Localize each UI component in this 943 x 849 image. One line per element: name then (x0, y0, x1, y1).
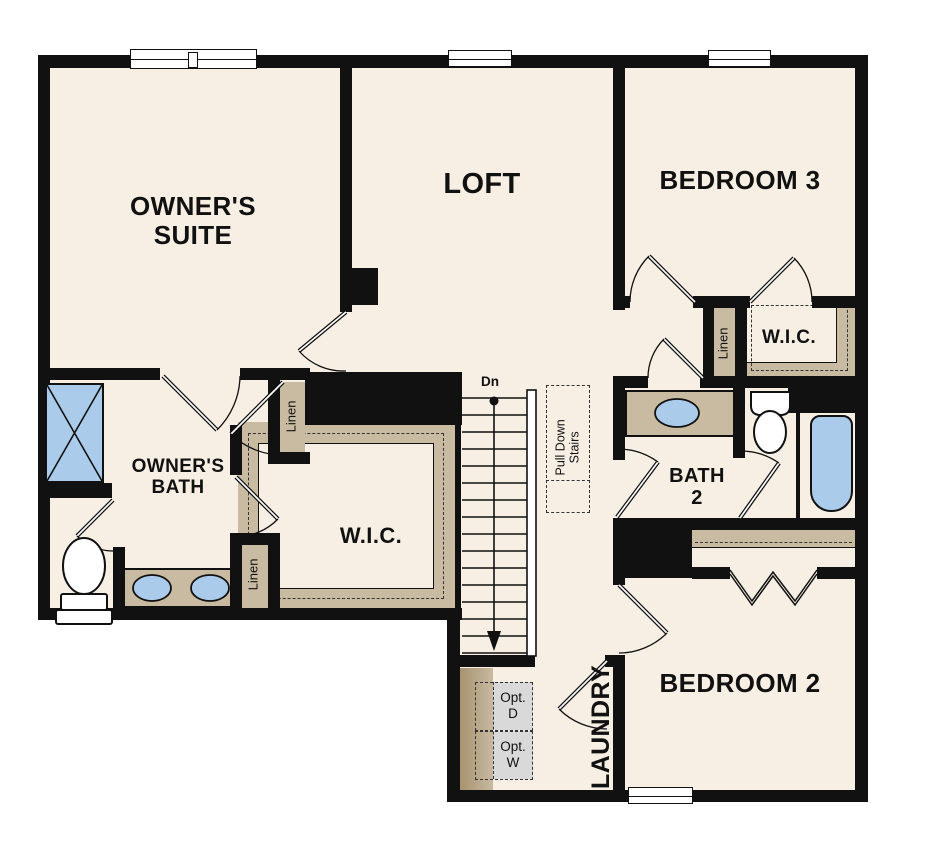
loft-label: LOFT (412, 168, 552, 200)
stair-down-arrow (487, 397, 501, 652)
laundry-label: LAUNDRY (587, 652, 615, 802)
stairs-down-label: Dn (474, 374, 506, 389)
shower-glass-lines (47, 385, 102, 481)
linen-lower-label: Linen (247, 539, 262, 609)
owners-wic-label: W.I.C. (311, 524, 431, 549)
pull-down-stairs-label-line2: Stairs (568, 382, 582, 512)
toilet2-icon (751, 392, 790, 453)
owners-bath-label-line2: BATH (98, 477, 258, 498)
owners-bath-label-line1: OWNER'S (98, 456, 258, 477)
bedroom3-label: BEDROOM 3 (640, 166, 840, 195)
linen-upper-label: Linen (285, 381, 300, 451)
bedroom3-wic-label: W.I.C. (749, 327, 829, 348)
opt-dryer-label-line2: D (493, 706, 533, 722)
owners-suite-label-line2: SUITE (103, 221, 283, 250)
opt-dryer-label: Opt. D (493, 690, 533, 721)
pull-down-stairs-label: Pull Down Stairs (554, 382, 583, 512)
bath2-label: BATH 2 (647, 465, 747, 510)
bath2-label-line2: 2 (647, 487, 747, 509)
stair-rail (527, 390, 536, 656)
owners-suite-label-line1: OWNER'S (103, 192, 283, 221)
plan-linework (0, 0, 943, 849)
bifold-door-icon (730, 570, 817, 605)
linen-bedroom3-label: Linen (717, 308, 732, 378)
bath2-label-line1: BATH (647, 465, 747, 487)
opt-washer-label: Opt. W (493, 739, 533, 770)
staircase-icon (462, 398, 528, 653)
opt-washer-label-line1: Opt. (493, 739, 533, 755)
bedroom2-label: BEDROOM 2 (640, 669, 840, 698)
owners-bath-label: OWNER'S BATH (98, 456, 258, 499)
opt-dryer-label-line1: Opt. (493, 690, 533, 706)
pull-down-stairs-label-line1: Pull Down (554, 382, 568, 512)
toilet-icon (56, 538, 112, 624)
owners-suite-label: OWNER'S SUITE (103, 192, 283, 250)
opt-washer-label-line2: W (493, 755, 533, 771)
floor-plan: OWNER'S SUITE LOFT BEDROOM 3 BEDROOM 2 O… (0, 0, 943, 849)
